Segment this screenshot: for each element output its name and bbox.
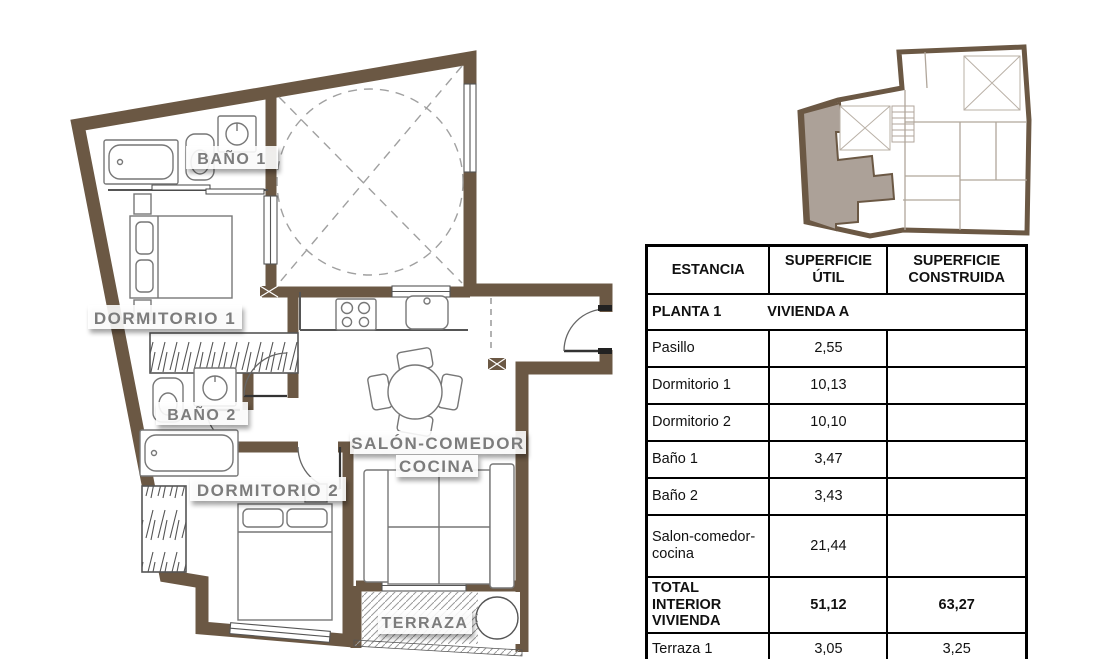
header-superficie-construida: SUPERFICIE CONSTRUIDA [887,246,1026,295]
header-superficie-util: SUPERFICIE ÚTIL [769,246,887,295]
row-label: Baño 1 [647,441,770,478]
bathtub-1 [104,140,178,184]
row-util: 10,10 [769,404,887,441]
vivienda-label: VIVIENDA A [767,304,849,320]
row-built [887,441,1026,478]
bano1-label: BAÑO 1 [197,148,266,168]
kitchen-sink [406,296,448,329]
surface-table: ESTANCIA SUPERFICIE ÚTIL SUPERFICIE CONS… [645,244,1028,659]
table-row: Dormitorio 1 10,13 [647,367,1027,404]
label-terraza: TERRAZA [378,610,472,634]
row-built: 3,25 [887,633,1026,659]
dining-table [367,347,463,437]
row-util: 3,05 [769,633,887,659]
terrace-table [476,592,520,644]
terraza-label: TERRAZA [382,615,469,632]
total-interior-row: TOTAL INTERIOR VIVIENDA 51,12 63,27 [647,577,1027,633]
row-util: 21,44 [769,515,887,577]
closet-2 [142,486,186,572]
table-row: Dormitorio 2 10,10 [647,404,1027,441]
sink-2 [194,368,236,406]
row-label: Terraza 1 [647,633,770,659]
row-label: Pasillo [647,330,770,367]
row-label: TOTAL INTERIOR VIVIENDA [647,577,770,633]
bed-2 [238,484,332,620]
row-built [887,478,1026,515]
row-built [887,404,1026,441]
table-row: Pasillo 2,55 [647,330,1027,367]
salon-label-line1: SALÓN-COMEDOR [351,434,524,453]
sofa [364,464,514,588]
floorplan-sheet: { "floorplan": { "labels": { "bano1": "B… [0,0,1100,659]
table-row: Terraza 1 3,05 3,25 [647,633,1027,659]
header-estancia: ESTANCIA [647,246,770,295]
table-header-row: ESTANCIA SUPERFICIE ÚTIL SUPERFICIE CONS… [647,246,1027,295]
row-label: Baño 2 [647,478,770,515]
row-built: 63,27 [887,577,1026,633]
table-row: Baño 2 3,43 [647,478,1027,515]
dormitorio1-label: DORMITORIO 1 [94,309,236,328]
patio-courtyard [277,66,463,283]
row-built [887,515,1026,577]
planta-label: PLANTA 1 [652,304,721,320]
row-built [887,330,1026,367]
row-util: 10,13 [769,367,887,404]
entrance-door [564,305,612,354]
label-bano2: BAÑO 2 [156,402,248,425]
table-row: Baño 1 3,47 [647,441,1027,478]
row-util: 3,47 [769,441,887,478]
label-dormitorio2: DORMITORIO 2 [190,477,346,501]
bed-1 [130,194,232,320]
row-util: 2,55 [769,330,887,367]
row-label: Salon-comedor-cocina [647,515,770,577]
section-row: PLANTA 1VIVIENDA A [647,294,1027,330]
row-util: 3,43 [769,478,887,515]
sliding-door-bano1 [152,185,264,194]
label-dormitorio1: DORMITORIO 1 [88,305,242,329]
table-row: Salon-comedor-cocina 21,44 [647,515,1027,577]
row-util: 51,12 [769,577,887,633]
label-bano1: BAÑO 1 [186,146,278,169]
row-label: Dormitorio 2 [647,404,770,441]
bano2-label: BAÑO 2 [167,404,236,424]
stove-hob [336,299,376,330]
key-plan [800,47,1029,236]
row-built [887,367,1026,404]
salon-label-line2: COCINA [399,457,475,476]
bathtub-2 [140,430,238,476]
row-label: Dormitorio 1 [647,367,770,404]
keyplan-stairs [892,106,914,142]
closet-1 [150,333,298,373]
dormitorio2-label: DORMITORIO 2 [197,481,339,500]
